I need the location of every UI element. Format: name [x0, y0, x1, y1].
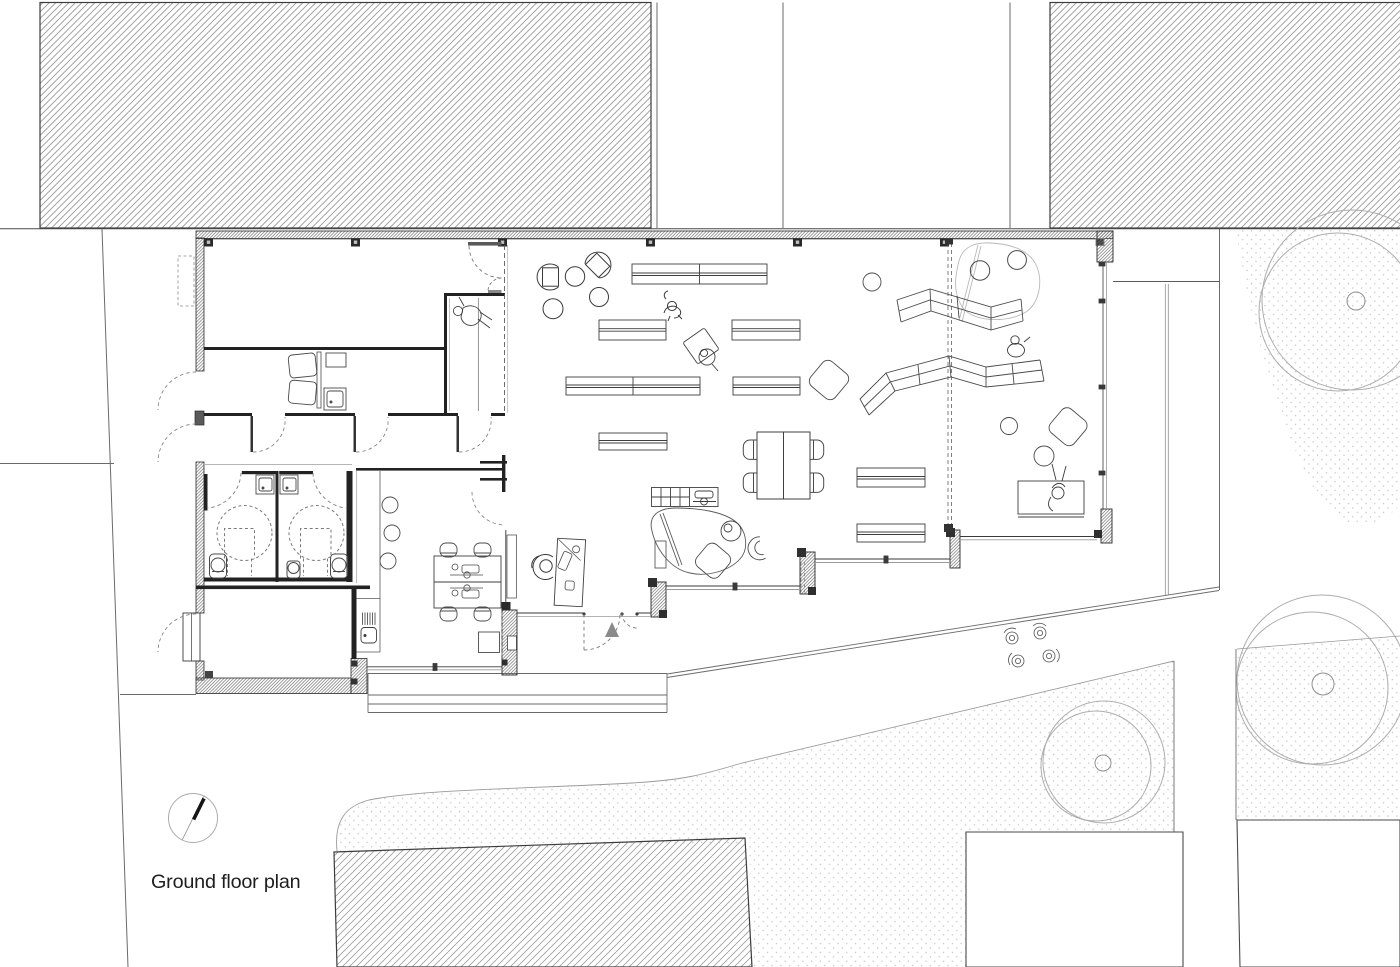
svg-text:Ground floor plan: Ground floor plan — [151, 871, 300, 893]
